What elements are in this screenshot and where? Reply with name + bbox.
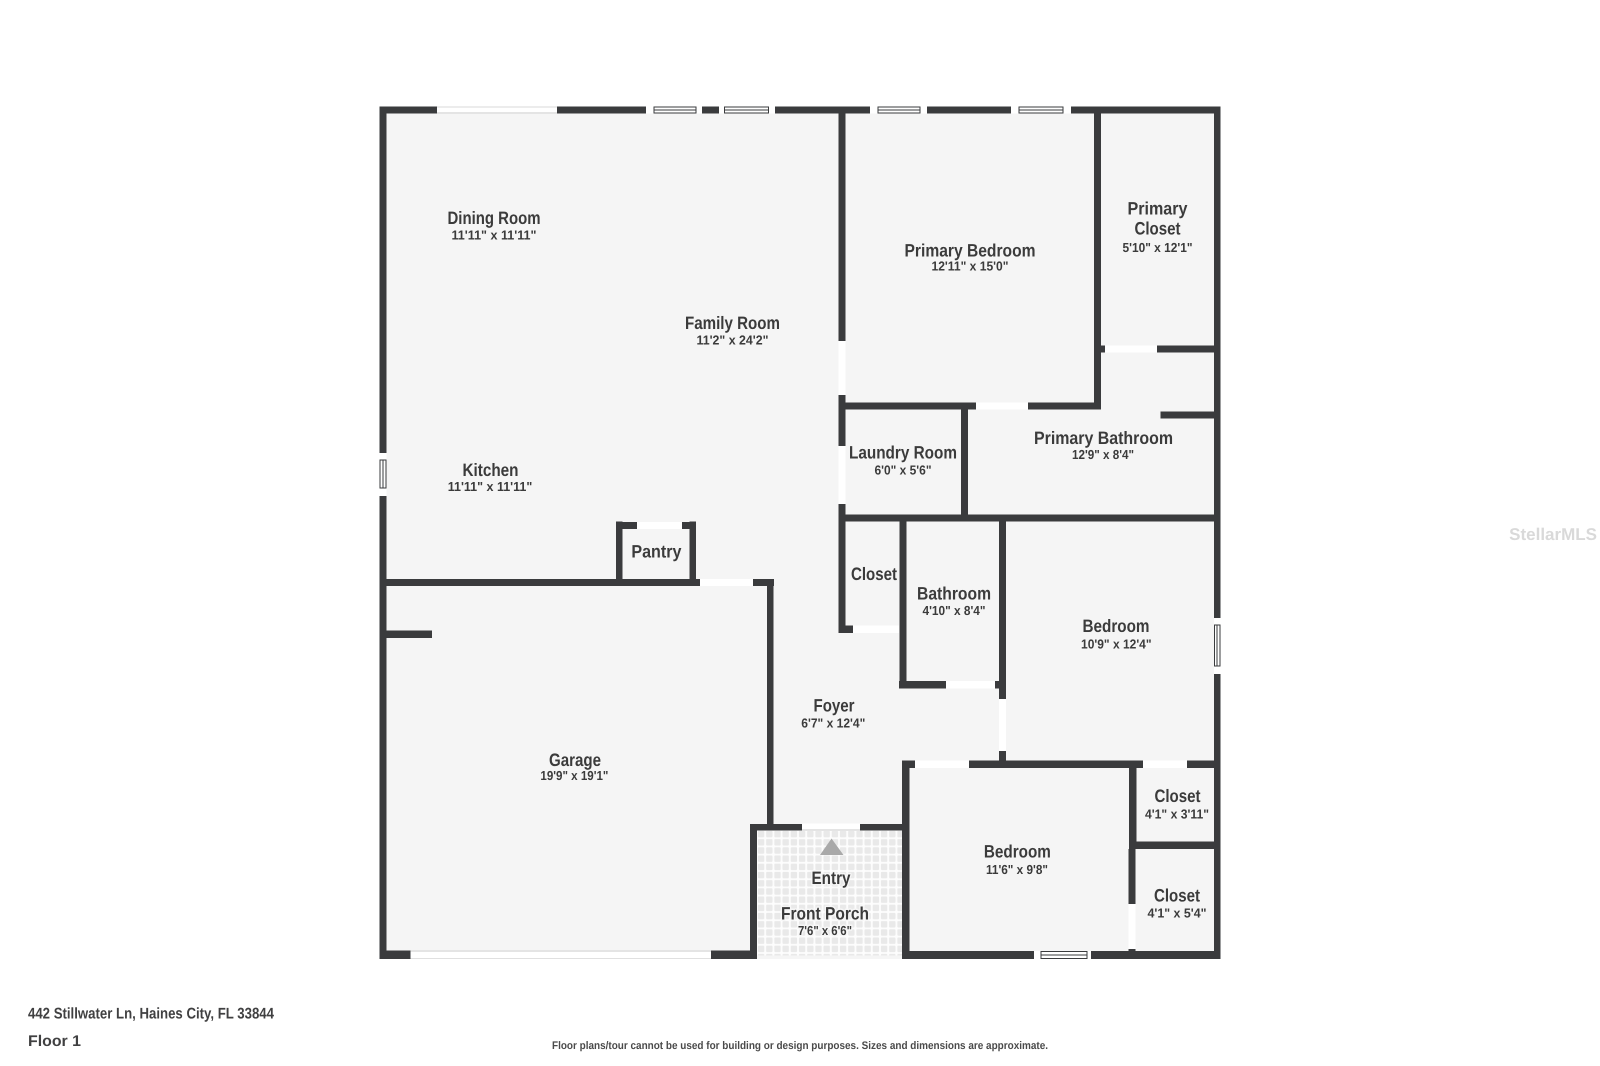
- svg-text:19'9" x 19'1": 19'9" x 19'1": [540, 768, 608, 783]
- svg-text:Foyer: Foyer: [814, 696, 855, 716]
- svg-text:Bedroom: Bedroom: [984, 842, 1051, 862]
- svg-text:Entry: Entry: [812, 868, 851, 888]
- svg-text:Pantry: Pantry: [631, 542, 681, 562]
- svg-text:Kitchen: Kitchen: [463, 460, 519, 480]
- svg-text:Laundry Room: Laundry Room: [849, 443, 957, 463]
- svg-text:12'11" x 15'0": 12'11" x 15'0": [932, 259, 1009, 274]
- svg-text:6'7" x 12'4": 6'7" x 12'4": [801, 716, 865, 731]
- svg-text:Primary: Primary: [1128, 199, 1188, 219]
- svg-text:Floor 1: Floor 1: [28, 1033, 81, 1050]
- svg-text:Closet: Closet: [1155, 786, 1201, 806]
- svg-text:Dining Room: Dining Room: [448, 208, 541, 228]
- svg-text:11'11" x 11'11": 11'11" x 11'11": [448, 479, 533, 494]
- svg-text:Floor plans/tour cannot be use: Floor plans/tour cannot be used for buil…: [552, 1040, 1048, 1052]
- svg-text:Garage: Garage: [549, 750, 601, 770]
- svg-text:442 Stillwater Ln, Haines City: 442 Stillwater Ln, Haines City, FL 33844: [28, 1006, 274, 1023]
- svg-text:4'10" x 8'4": 4'10" x 8'4": [923, 603, 986, 618]
- svg-text:10'9" x 12'4": 10'9" x 12'4": [1081, 637, 1152, 652]
- svg-text:6'0" x 5'6": 6'0" x 5'6": [875, 463, 932, 478]
- svg-text:StellarMLS: StellarMLS: [1509, 525, 1597, 544]
- svg-text:4'1" x 3'11": 4'1" x 3'11": [1145, 807, 1209, 822]
- svg-text:11'11" x 11'11": 11'11" x 11'11": [452, 228, 537, 243]
- svg-text:Family Room: Family Room: [685, 313, 780, 333]
- svg-text:Closet: Closet: [851, 564, 897, 584]
- svg-text:4'1" x 5'4": 4'1" x 5'4": [1148, 906, 1207, 921]
- svg-text:Closet: Closet: [1154, 885, 1200, 905]
- svg-text:11'6" x 9'8": 11'6" x 9'8": [986, 862, 1048, 877]
- svg-text:Primary Bedroom: Primary Bedroom: [905, 241, 1036, 261]
- svg-text:12'9" x 8'4": 12'9" x 8'4": [1072, 447, 1134, 462]
- svg-text:Primary Bathroom: Primary Bathroom: [1034, 428, 1173, 448]
- svg-text:11'2" x 24'2": 11'2" x 24'2": [697, 333, 769, 348]
- svg-text:Closet: Closet: [1135, 219, 1181, 239]
- svg-text:5'10" x 12'1": 5'10" x 12'1": [1123, 240, 1193, 255]
- svg-text:Front Porch: Front Porch: [781, 904, 869, 924]
- svg-text:Bedroom: Bedroom: [1083, 616, 1150, 636]
- svg-text:Bathroom: Bathroom: [917, 584, 991, 604]
- svg-text:7'6" x 6'6": 7'6" x 6'6": [798, 923, 852, 938]
